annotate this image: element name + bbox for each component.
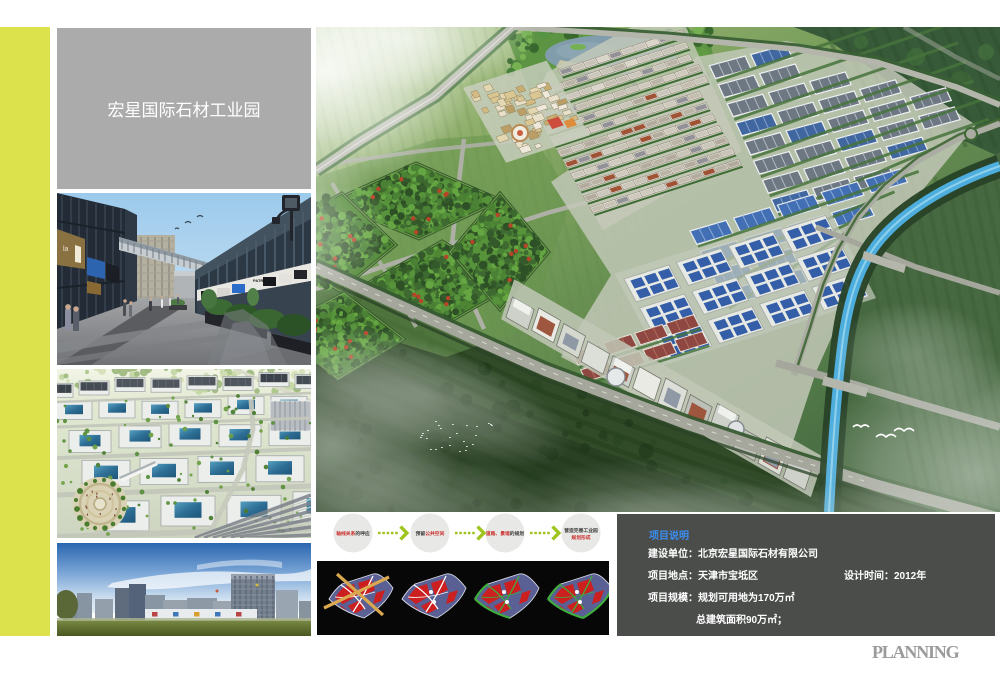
svg-text:轴线关系的呼应: 轴线关系的呼应	[336, 530, 370, 537]
svg-text:预留公共空间: 预留公共空间	[416, 530, 445, 537]
svg-text:规划形成: 规划形成	[571, 534, 590, 541]
svg-text:道路、景墙的规划: 道路、景墙的规划	[486, 530, 525, 537]
svg-text:PATROL: PATROL	[253, 278, 269, 283]
svg-text:营造完善工业园: 营造完善工业园	[564, 527, 598, 534]
svg-text:la: la	[63, 246, 69, 253]
